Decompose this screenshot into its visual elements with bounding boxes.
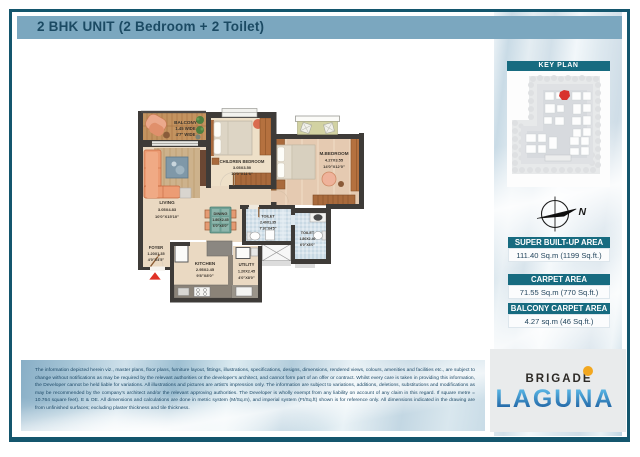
svg-text:KITCHEN: KITCHEN: [195, 261, 216, 266]
svg-text:1.80X2.40: 1.80X2.40: [300, 237, 316, 241]
svg-text:10'0"X15'10": 10'0"X15'10": [155, 214, 179, 219]
svg-text:2.40X1.35: 2.40X1.35: [260, 221, 276, 225]
svg-text:DINING: DINING: [214, 211, 228, 216]
svg-text:1.20X2.45: 1.20X2.45: [238, 270, 255, 274]
svg-text:TOILET: TOILET: [261, 215, 275, 219]
svg-text:6'0"X8'0": 6'0"X8'0": [300, 243, 315, 247]
svg-text:4'0"X8'0": 4'0"X8'0": [238, 276, 255, 280]
svg-text:CHILDREN BEDROOM: CHILDREN BEDROOM: [220, 159, 265, 164]
svg-text:7'10"X4'5": 7'10"X4'5": [259, 227, 276, 231]
svg-text:3.05X3.50: 3.05X3.50: [233, 165, 252, 170]
svg-text:TOILET: TOILET: [301, 231, 315, 235]
svg-text:3.05X4.83: 3.05X4.83: [158, 207, 177, 212]
svg-text:M.BEDROOM: M.BEDROOM: [319, 151, 348, 156]
svg-text:2.95X2.45: 2.95X2.45: [196, 267, 215, 272]
svg-text:BALCONY: BALCONY: [174, 120, 197, 125]
svg-text:1.20X1.35: 1.20X1.35: [147, 252, 164, 256]
svg-text:9'8"X8'0": 9'8"X8'0": [196, 273, 213, 278]
svg-text:4'0"X4'5": 4'0"X4'5": [148, 258, 165, 262]
svg-text:1.45 WIDE: 1.45 WIDE: [175, 126, 195, 131]
svg-text:10'0"X11'6": 10'0"X11'6": [231, 171, 253, 176]
svg-text:FOYER: FOYER: [149, 245, 163, 250]
svg-text:LIVING: LIVING: [159, 200, 175, 205]
svg-text:6'0"X8'0": 6'0"X8'0": [213, 224, 229, 228]
svg-text:14'0"X12'0": 14'0"X12'0": [323, 164, 345, 169]
svg-text:4'7" WIDE: 4'7" WIDE: [176, 132, 196, 137]
svg-text:1.80X2.45: 1.80X2.45: [212, 218, 228, 222]
svg-text:UTILITY: UTILITY: [239, 262, 255, 267]
svg-text:4.27X3.55: 4.27X3.55: [325, 158, 344, 163]
